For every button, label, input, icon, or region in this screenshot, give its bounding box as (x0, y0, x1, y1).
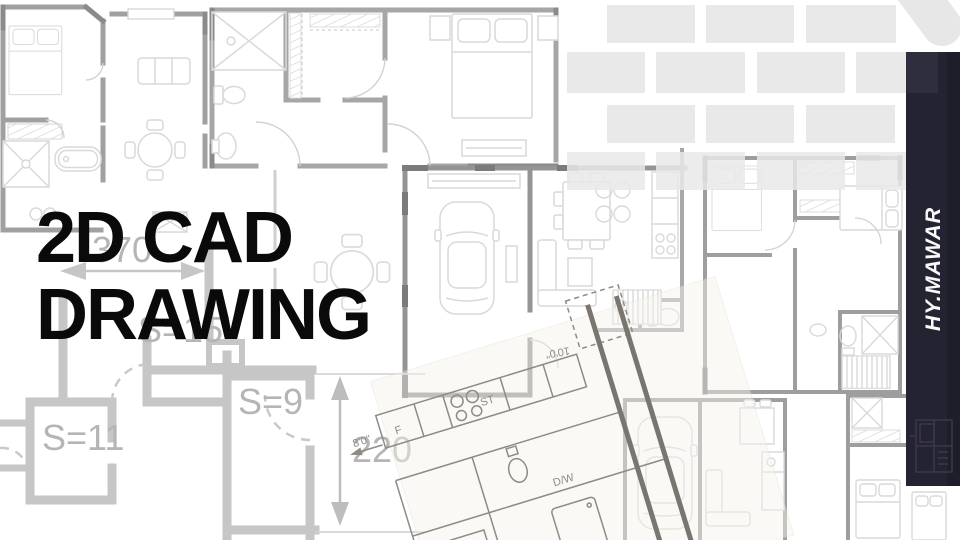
title-line-1: 2D CAD (36, 200, 370, 277)
sidebar-dark-bar: HY.MAWAR (906, 52, 960, 486)
page-title: 2D CAD DRAWING (36, 200, 370, 354)
floor-plan-top-middle (212, 10, 558, 166)
brick-grid (567, 5, 938, 190)
corner-diagonal-shape (902, 0, 942, 26)
title-line-2: DRAWING (36, 277, 370, 354)
slide-canvas: 370 S=15 S=11 S=9 220 8'0" F ST D (0, 0, 960, 540)
room-s11-label: S=11 (42, 417, 124, 458)
room-s9-label: S=9 (238, 381, 303, 422)
brand-vertical-label: HY.MAWAR (921, 207, 945, 331)
